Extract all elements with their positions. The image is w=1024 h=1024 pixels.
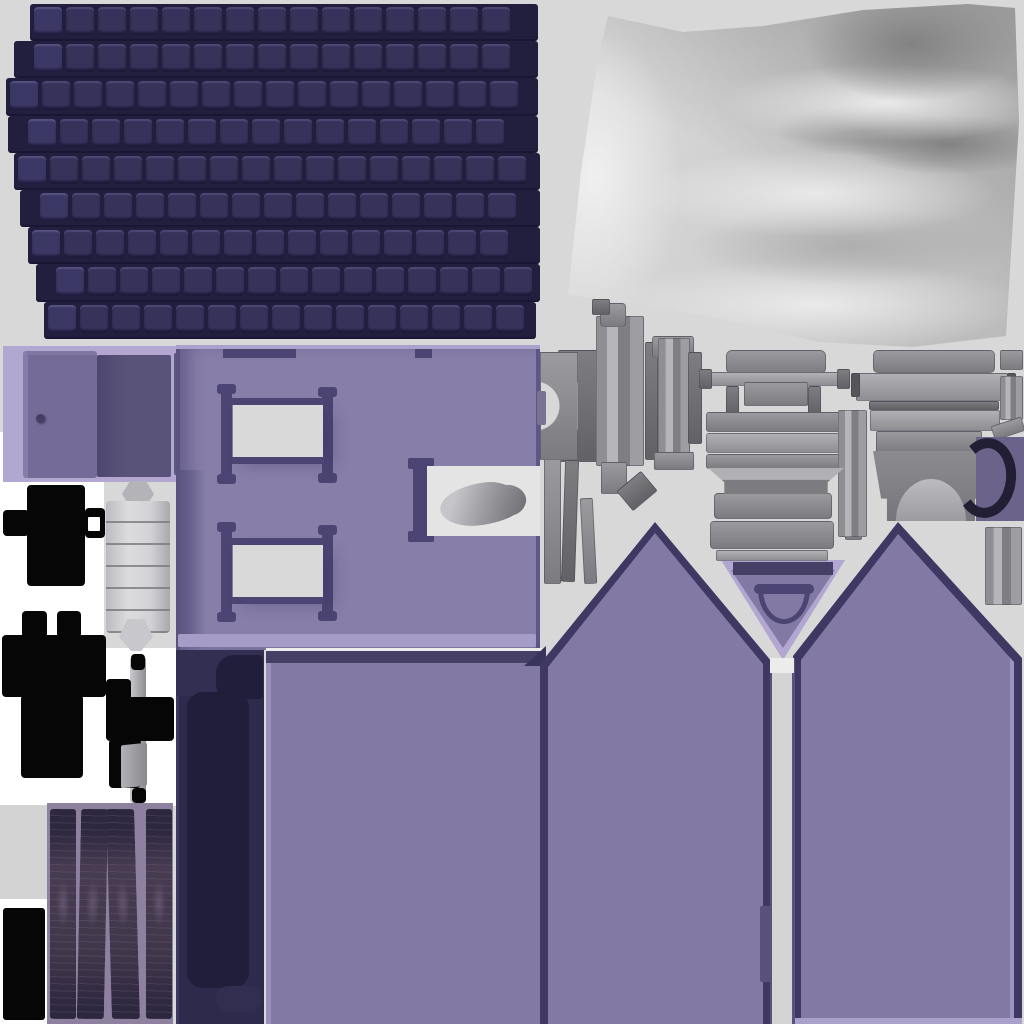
roof-tile xyxy=(160,230,188,258)
roof-tile xyxy=(386,44,414,72)
latch-metal-plate xyxy=(121,743,147,789)
roof-tile xyxy=(426,81,454,109)
gray-hardware-part xyxy=(544,456,561,584)
roof-tile xyxy=(156,119,184,147)
roof-tile xyxy=(348,119,376,147)
roof-tile xyxy=(170,81,198,109)
roof-tile xyxy=(450,7,478,35)
roof-tile xyxy=(56,267,84,295)
roof-tile xyxy=(72,193,100,221)
roof-tile xyxy=(344,267,372,295)
gray-hardware-part xyxy=(699,369,712,389)
plain-wall-texture xyxy=(266,650,542,1024)
roof-tile xyxy=(424,193,452,221)
roof-row xyxy=(20,190,540,225)
roof-tile xyxy=(216,267,244,295)
roof-tile xyxy=(138,81,166,109)
roof-tile xyxy=(352,230,380,258)
roof-tile xyxy=(224,230,252,258)
roof-tile xyxy=(98,7,126,35)
roof-tile xyxy=(416,230,444,258)
latch-foot xyxy=(132,788,146,803)
wall-bottom-band xyxy=(178,634,536,647)
wall-top-notch xyxy=(415,349,432,358)
roof-tile xyxy=(482,7,510,35)
roof-tile xyxy=(444,119,472,147)
door-handle-arc-part xyxy=(976,437,1024,521)
soffit-triangle xyxy=(721,556,845,660)
gray-hardware-part xyxy=(838,410,867,537)
gray-hardware-part xyxy=(808,386,821,416)
roof-tile xyxy=(106,81,134,109)
roof-tile xyxy=(48,305,76,333)
roof-tile xyxy=(472,267,500,295)
roof-tile xyxy=(264,193,292,221)
gray-hardware-part xyxy=(580,498,597,585)
wall-top-notch xyxy=(223,349,296,358)
roof-tile xyxy=(74,81,102,109)
roof-tile xyxy=(66,7,94,35)
roof-tile xyxy=(370,156,398,184)
door-knob xyxy=(36,414,45,423)
roof-tile xyxy=(210,156,238,184)
texture-atlas-sheet xyxy=(0,0,1024,1024)
roof-tile xyxy=(290,7,318,35)
gray-hardware-part xyxy=(870,410,1000,431)
window-rail xyxy=(232,538,324,545)
gray-hardware-part xyxy=(726,350,826,374)
roof-row xyxy=(6,78,538,113)
roof-tile xyxy=(34,7,62,35)
roof-tile xyxy=(130,7,158,35)
roof-tile xyxy=(50,156,78,184)
roof-tile xyxy=(312,267,340,295)
roof-tile xyxy=(240,305,268,333)
gray-backing-column xyxy=(0,805,47,899)
window-frame xyxy=(221,526,333,624)
roof-tile xyxy=(434,156,462,184)
roof-tile xyxy=(386,7,414,35)
roof-tile xyxy=(274,156,302,184)
roof-tile xyxy=(120,267,148,295)
window-pane xyxy=(233,545,323,597)
roof-tile xyxy=(432,305,460,333)
gray-hardware-part xyxy=(652,336,694,358)
roof-tile xyxy=(496,305,524,333)
roof-tile xyxy=(316,119,344,147)
wood-planks-texture xyxy=(47,803,173,1024)
black-silhouette-tab xyxy=(22,611,47,638)
gray-hardware-part xyxy=(645,342,658,460)
gray-hardware-part xyxy=(706,412,842,432)
gray-hardware-part xyxy=(1000,376,1023,420)
gray-hardware-part xyxy=(600,303,626,327)
roof-tile xyxy=(32,230,60,258)
roof-tile xyxy=(258,44,286,72)
roof-tile xyxy=(162,7,190,35)
window-post xyxy=(413,460,427,542)
gray-hardware-part xyxy=(714,493,832,519)
window-rail xyxy=(232,457,324,464)
roof-tile xyxy=(408,267,436,295)
roof-tile xyxy=(146,156,174,184)
roof-tile xyxy=(112,305,140,333)
roof-tile xyxy=(220,119,248,147)
roof-tile xyxy=(18,156,46,184)
window-pane xyxy=(233,405,323,457)
roof-tile xyxy=(114,156,142,184)
black-silhouette-base xyxy=(21,695,83,778)
roof-tile xyxy=(194,44,222,72)
window-rail xyxy=(232,597,324,604)
hinge-cylinder xyxy=(104,481,174,653)
gray-hardware-part xyxy=(710,521,834,549)
uv-gap-strip xyxy=(772,658,792,1024)
gray-hardware-part xyxy=(706,454,842,469)
roof-tile xyxy=(202,81,230,109)
black-silhouette-tab xyxy=(57,611,81,638)
roof-tile xyxy=(284,119,312,147)
satin-fabric-texture xyxy=(563,2,1022,350)
wood-plank xyxy=(50,809,76,1019)
roof-tile xyxy=(96,230,124,258)
roof-tile xyxy=(10,81,38,109)
roof-tile xyxy=(194,7,222,35)
latch-body xyxy=(106,697,174,741)
roof-tile xyxy=(450,44,478,72)
roof-tile xyxy=(298,81,326,109)
roof-tile xyxy=(476,119,504,147)
roof-tile xyxy=(232,193,260,221)
roof-tile xyxy=(458,81,486,109)
gray-hardware-part xyxy=(744,382,808,406)
roof-row xyxy=(30,4,538,39)
roof-tile xyxy=(400,305,428,333)
gray-hardware-part xyxy=(601,462,627,494)
latch-cap xyxy=(131,654,145,670)
gable-bottom-highlight xyxy=(795,1018,1022,1024)
bed-foot-pad xyxy=(216,986,262,1012)
small-purple-fragment xyxy=(537,391,546,425)
roof-tile xyxy=(168,193,196,221)
roof-tile xyxy=(124,119,152,147)
gray-hardware-part xyxy=(596,316,644,466)
roof-tile xyxy=(82,156,110,184)
roof-tile xyxy=(66,44,94,72)
roof-tile xyxy=(176,305,204,333)
roof-tile xyxy=(272,305,300,333)
roof-tile xyxy=(466,156,494,184)
roof-tile xyxy=(234,81,262,109)
roof-tile xyxy=(328,193,356,221)
gray-hardware-part xyxy=(873,350,995,373)
roof-tile xyxy=(152,267,180,295)
roof-tile xyxy=(360,193,388,221)
wood-plank xyxy=(77,809,108,1019)
gray-hardware-part xyxy=(851,373,860,397)
roof-tile xyxy=(128,230,156,258)
gray-hardware-part xyxy=(654,452,694,470)
roof-tile xyxy=(394,81,422,109)
roof-tile xyxy=(88,267,116,295)
roof-tile xyxy=(188,119,216,147)
wood-plank xyxy=(146,809,172,1019)
roof-tile xyxy=(504,267,532,295)
roof-tile xyxy=(130,44,158,72)
roof-tile xyxy=(226,44,254,72)
roof-tile xyxy=(290,44,318,72)
roof-tile xyxy=(162,44,190,72)
gray-hardware-part xyxy=(869,401,999,410)
roof-tile xyxy=(208,305,236,333)
roof-row xyxy=(44,302,536,337)
gray-hardware-part xyxy=(1000,350,1023,370)
roof-tile xyxy=(380,119,408,147)
open-window-cutout xyxy=(408,455,540,547)
gray-hardware-part xyxy=(592,299,610,315)
roof-tile xyxy=(418,44,446,72)
roof-row xyxy=(14,41,538,76)
roof-tile xyxy=(456,193,484,221)
roof-tile xyxy=(384,230,412,258)
roof-tile xyxy=(226,7,254,35)
roof-tile xyxy=(482,44,510,72)
black-rectangle xyxy=(3,908,45,1020)
roof-tile xyxy=(440,267,468,295)
black-bracket-shape xyxy=(27,485,85,586)
roof-tile xyxy=(144,305,172,333)
roof-tile xyxy=(368,305,396,333)
roof-tile xyxy=(322,7,350,35)
gray-hardware-part xyxy=(845,510,862,540)
roof-tile xyxy=(192,230,220,258)
roof-tile xyxy=(448,230,476,258)
gap-strip-cap xyxy=(770,658,794,673)
gray-hardware-part xyxy=(706,433,842,453)
gray-hardware-part xyxy=(561,460,579,582)
window-rail xyxy=(232,398,324,405)
door-dark-panel xyxy=(97,355,171,477)
roof-tile xyxy=(80,305,108,333)
gray-hardware-part xyxy=(837,369,850,389)
roof-tile xyxy=(256,230,284,258)
roof-row xyxy=(36,264,540,299)
roof-tile xyxy=(392,193,420,221)
front-wall-texture xyxy=(176,345,540,650)
roof-tile xyxy=(242,156,270,184)
bracket-notch-hole xyxy=(88,517,100,531)
roof-tile xyxy=(42,81,70,109)
gray-hardware-part xyxy=(616,471,657,511)
roof-tile xyxy=(402,156,430,184)
door-panel-texture xyxy=(3,346,186,482)
roof-tile xyxy=(354,7,382,35)
roof-tile xyxy=(354,44,382,72)
window-post xyxy=(221,526,232,618)
roof-tile xyxy=(464,305,492,333)
wall-top-trim xyxy=(266,651,542,663)
gray-hardware-part xyxy=(985,527,1022,605)
gray-hardware-part xyxy=(856,373,1008,401)
roof-tile xyxy=(248,267,276,295)
bed-inner-panel xyxy=(187,692,249,988)
roof-tile xyxy=(488,193,516,221)
roof-tile xyxy=(92,119,120,147)
hinge-barrel xyxy=(106,501,170,633)
roof-row xyxy=(28,227,540,262)
roof-tile xyxy=(64,230,92,258)
window-post xyxy=(221,388,232,480)
wall-corner-shadow xyxy=(179,470,206,648)
gray-hardware-part xyxy=(726,386,739,416)
roof-tile xyxy=(258,7,286,35)
roof-tile xyxy=(252,119,280,147)
roof-tile xyxy=(288,230,316,258)
roof-tile xyxy=(266,81,294,109)
roof-tile xyxy=(40,193,68,221)
tray-trapezoid-part xyxy=(708,468,844,494)
roof-tile xyxy=(490,81,518,109)
door-leaf xyxy=(23,351,97,478)
roof-tile xyxy=(136,193,164,221)
roof-tile xyxy=(306,156,334,184)
roof-tile xyxy=(104,193,132,221)
roof-tile xyxy=(376,267,404,295)
gray-hardware-part xyxy=(1007,373,1016,397)
roof-tile xyxy=(412,119,440,147)
roof-row xyxy=(14,153,540,188)
roof-tile xyxy=(362,81,390,109)
roof-tile xyxy=(498,156,526,184)
roof-tile xyxy=(296,193,324,221)
black-silhouette-body xyxy=(2,635,106,697)
gable-edge-tab xyxy=(760,906,772,982)
gray-hardware-part xyxy=(704,372,850,386)
roof-tile xyxy=(320,230,348,258)
roof-tile xyxy=(322,44,350,72)
roof-tile xyxy=(480,230,508,258)
roof-tile xyxy=(418,7,446,35)
roof-tile xyxy=(280,267,308,295)
roof-tile xyxy=(34,44,62,72)
roof-tile xyxy=(178,156,206,184)
window-frame xyxy=(221,388,333,486)
roof-tile xyxy=(304,305,332,333)
roof-tile xyxy=(330,81,358,109)
wood-plank xyxy=(106,809,140,1019)
black-bracket-arm xyxy=(3,510,29,536)
roof-tile xyxy=(98,44,126,72)
roof-tile xyxy=(60,119,88,147)
roof-tile xyxy=(200,193,228,221)
roof-tile xyxy=(338,156,366,184)
gray-hardware-part xyxy=(658,338,690,470)
roof-tile xyxy=(336,305,364,333)
roof-tile xyxy=(28,119,56,147)
roof-row xyxy=(8,116,538,151)
gray-hardware-part xyxy=(688,352,702,444)
roof-shingles-texture xyxy=(0,0,560,346)
roof-tile xyxy=(184,267,212,295)
bed-base-texture xyxy=(176,650,264,1024)
soffit-top-beam xyxy=(733,562,833,575)
